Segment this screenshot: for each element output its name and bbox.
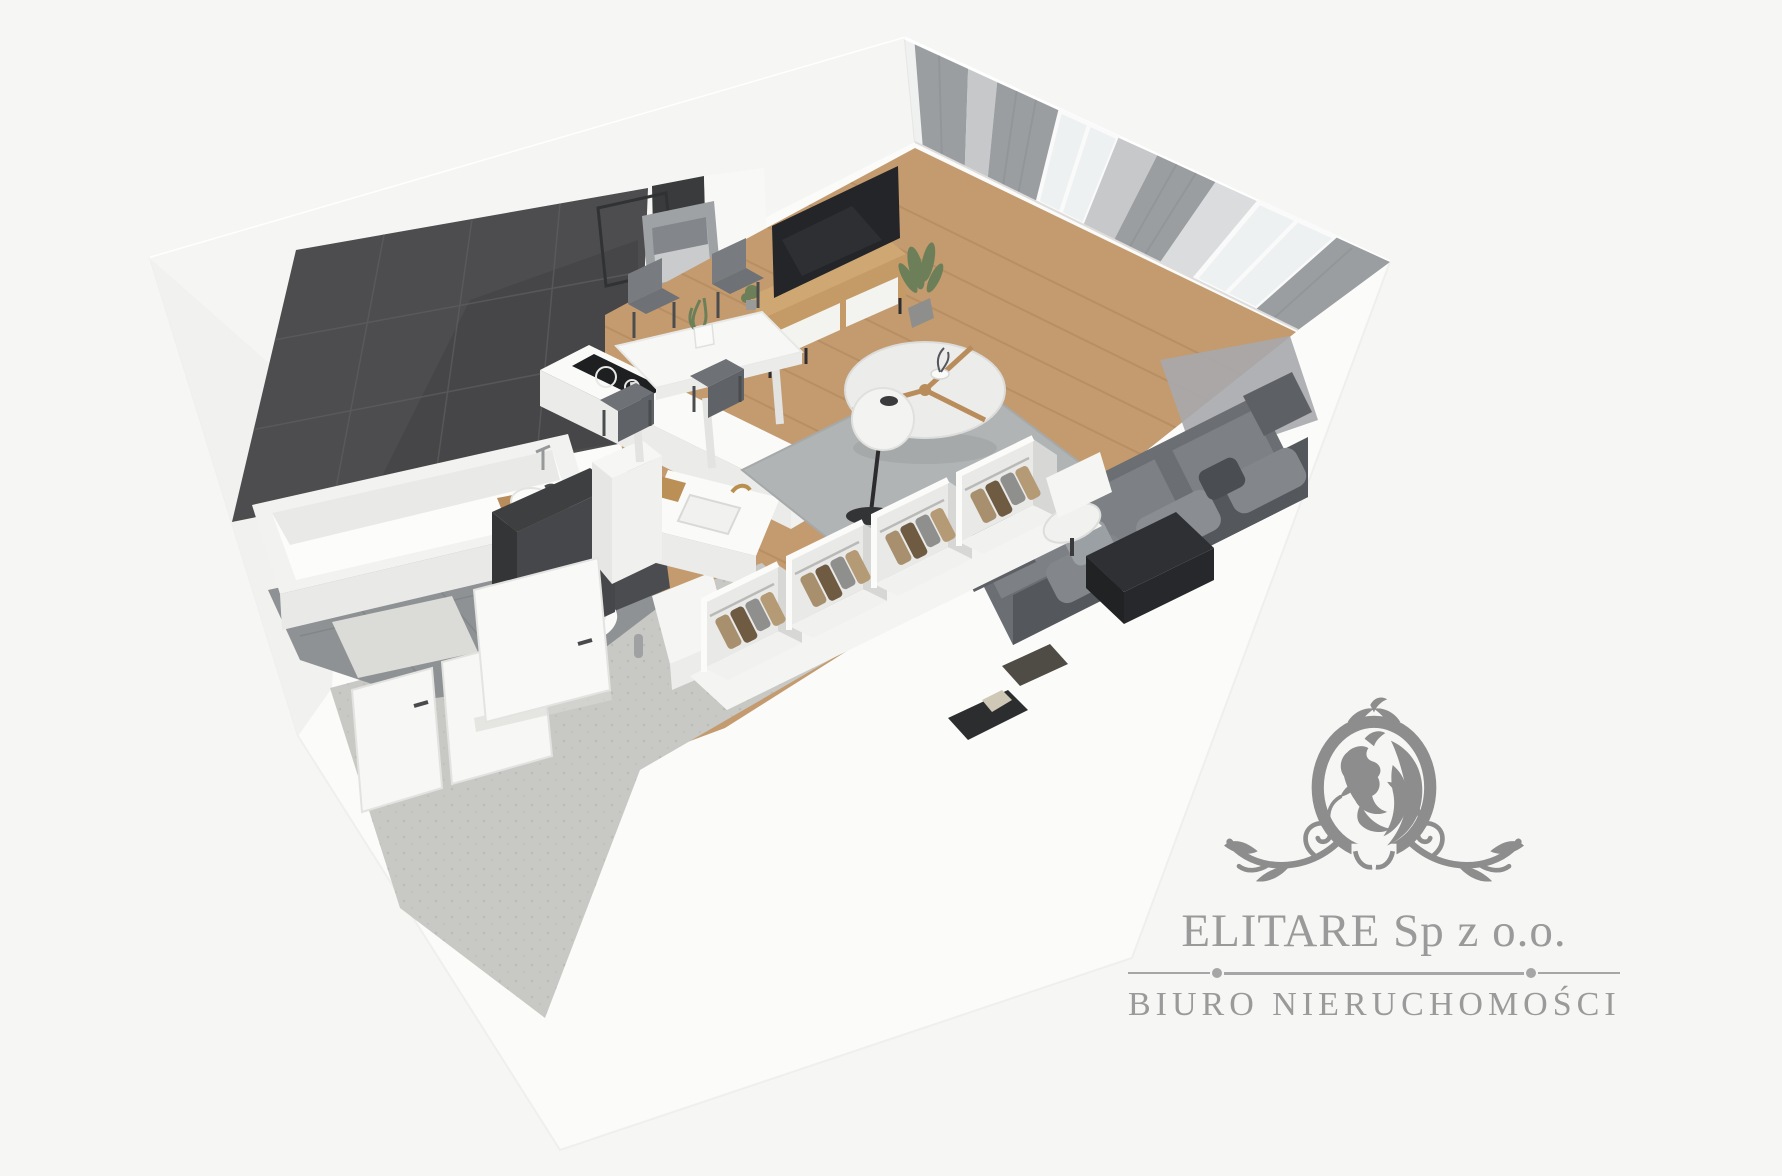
divider-line bbox=[1128, 972, 1210, 974]
logo-divider bbox=[1128, 968, 1620, 978]
agency-logo: ELITARE Sp z o.o. BIURO NIERUCHOMOŚCI bbox=[1128, 686, 1620, 1024]
toilet-brush bbox=[634, 634, 643, 658]
divider-dot bbox=[1526, 968, 1536, 978]
company-tagline: BIURO NIERUCHOMOŚCI bbox=[1128, 986, 1620, 1024]
divider-bar bbox=[1224, 972, 1524, 975]
divider-line bbox=[1538, 972, 1620, 974]
real-estate-floorplan-page: ELITARE Sp z o.o. BIURO NIERUCHOMOŚCI bbox=[0, 0, 1782, 1176]
lion-crest-icon bbox=[1224, 686, 1524, 902]
divider-dot bbox=[1212, 968, 1222, 978]
company-name: ELITARE Sp z o.o. bbox=[1128, 904, 1620, 958]
tall-white-cabinet bbox=[592, 440, 662, 584]
